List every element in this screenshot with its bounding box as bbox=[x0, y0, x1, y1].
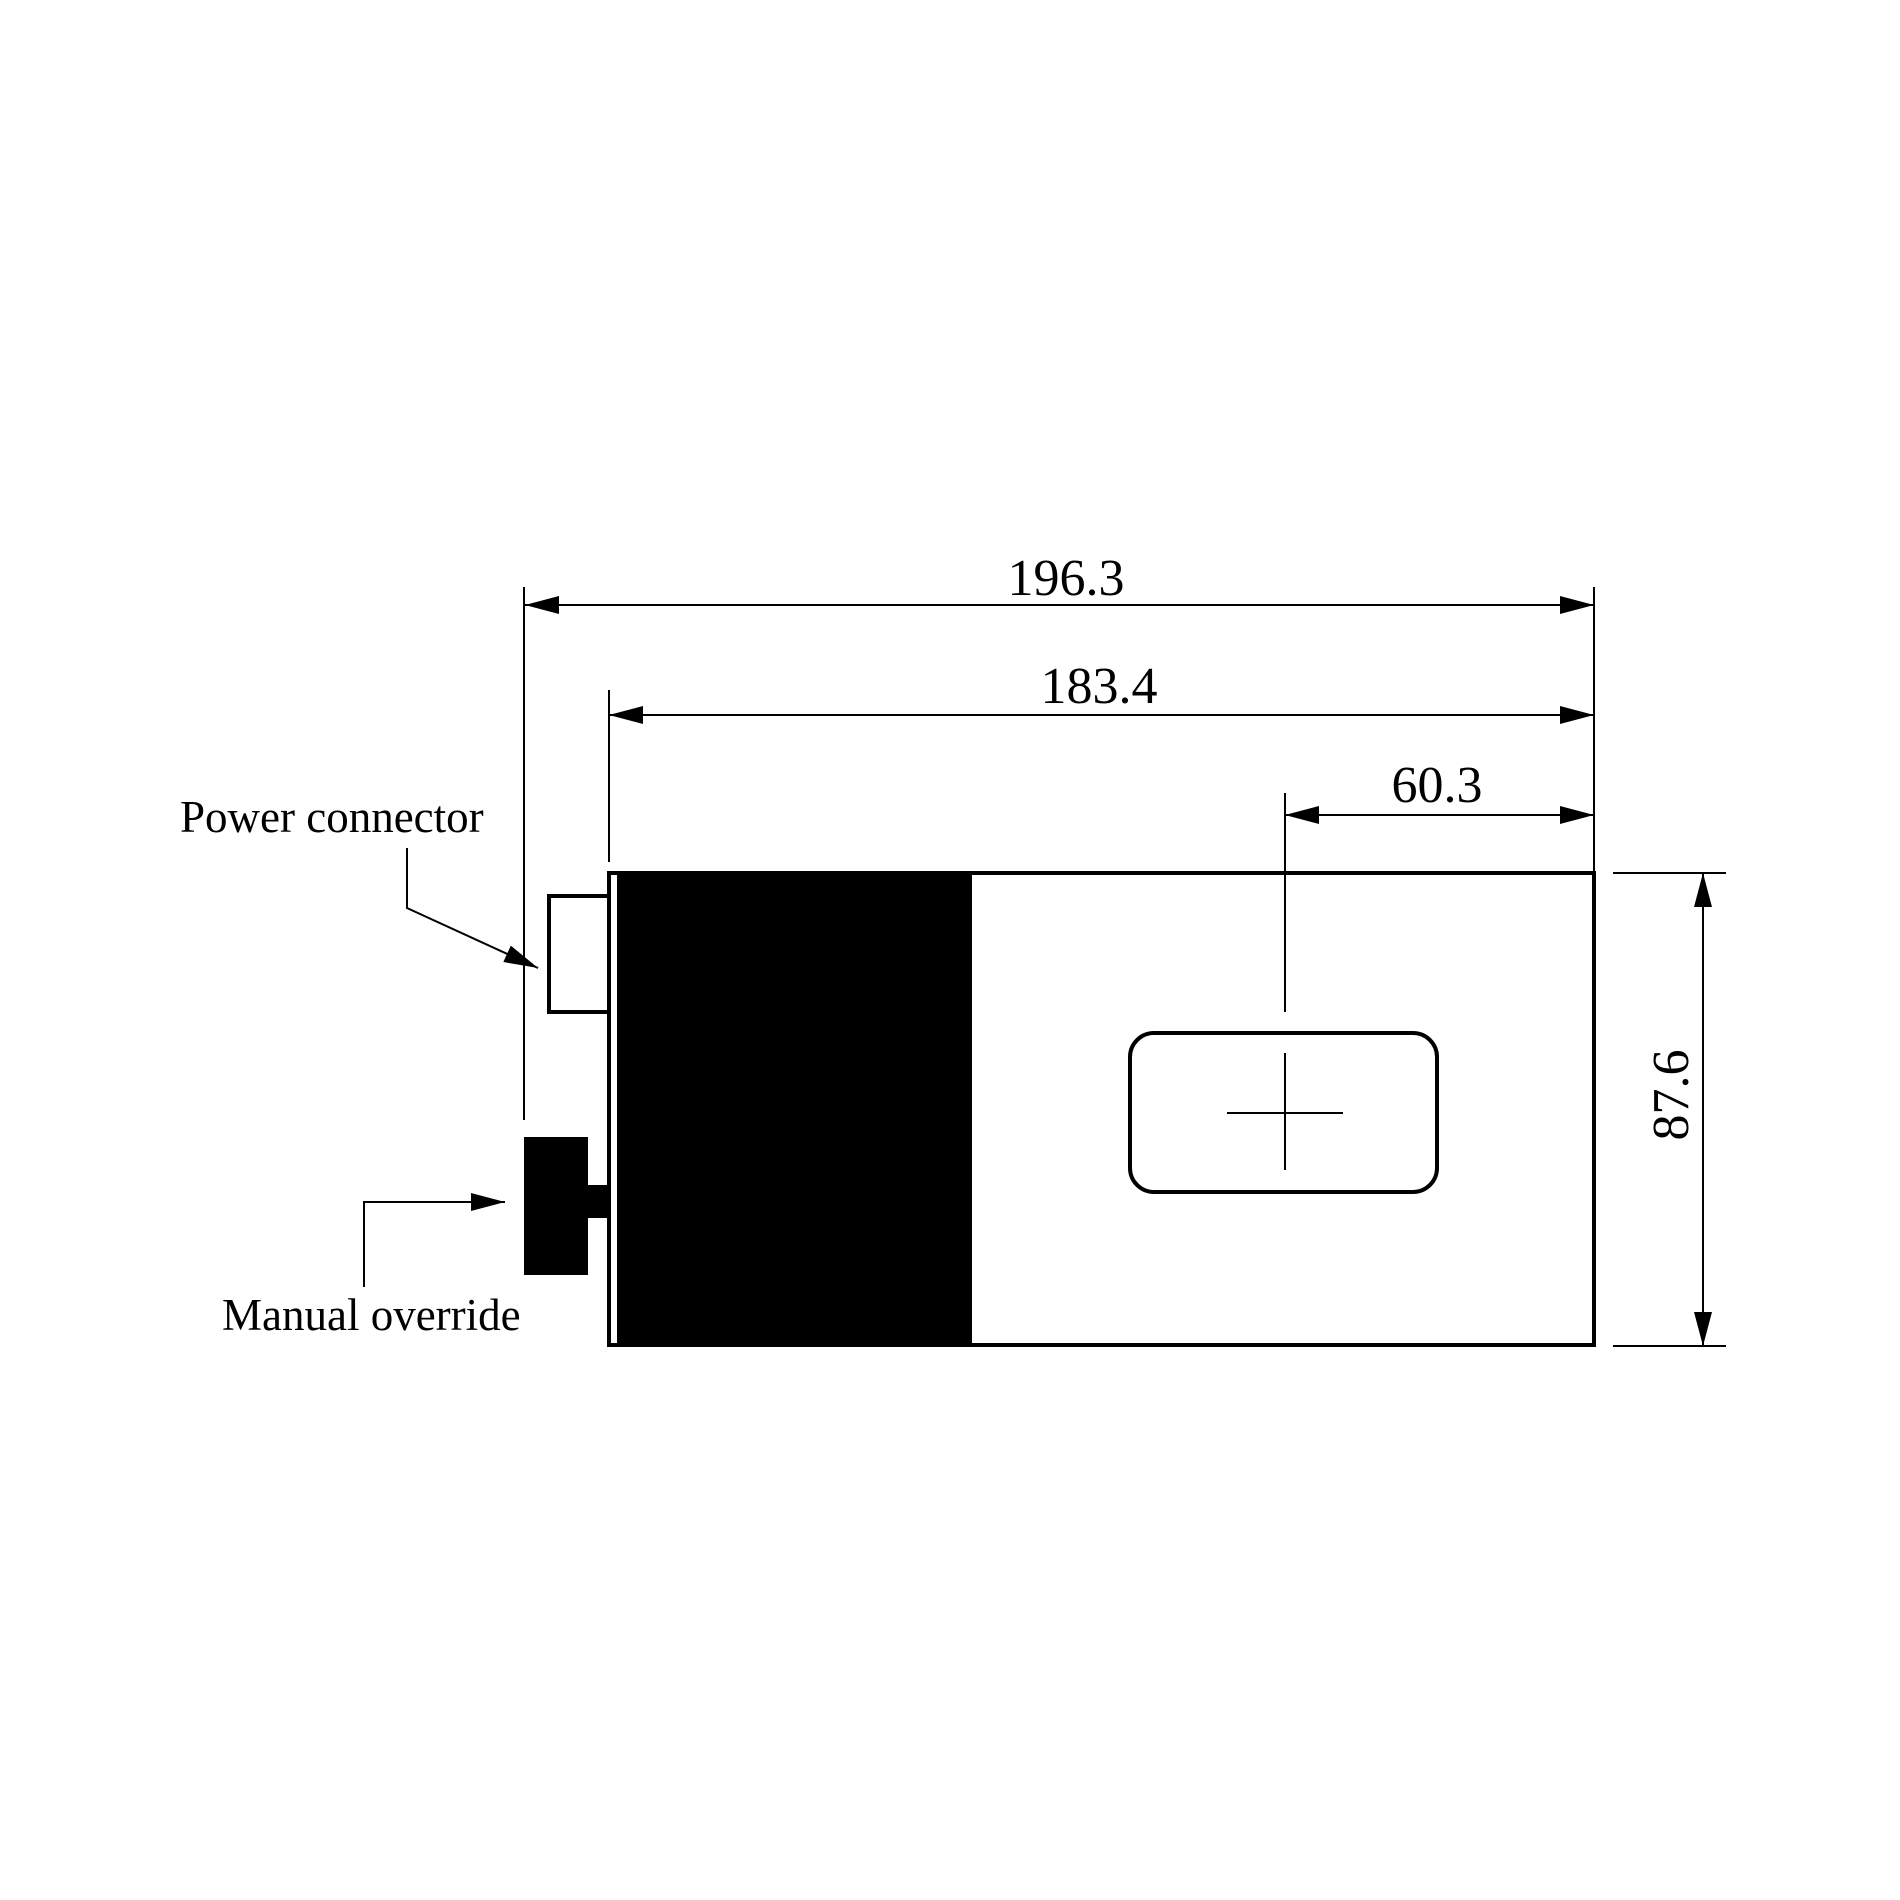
arrowhead-offset-left-icon bbox=[1285, 806, 1319, 824]
dimension-body-height: 87.6 bbox=[1643, 873, 1712, 1346]
arrowhead-offset-right-icon bbox=[1560, 806, 1594, 824]
dimension-crosshair-offset: 60.3 bbox=[1285, 757, 1594, 824]
arrowhead-total-left-icon bbox=[525, 596, 559, 614]
dimension-total-length: 196.3 bbox=[525, 550, 1594, 614]
label-manual-override: Manual override bbox=[222, 1290, 521, 1340]
leader-arrowhead-manual-icon bbox=[471, 1193, 505, 1211]
power-connector-shape bbox=[549, 896, 609, 1012]
leader-line-power-connector bbox=[407, 848, 538, 968]
label-power-connector: Power connector bbox=[180, 792, 484, 842]
leader-line-manual-override bbox=[364, 1202, 505, 1287]
arrowhead-height-bottom-icon bbox=[1694, 1312, 1712, 1346]
dimension-value-total-length: 196.3 bbox=[1008, 550, 1125, 607]
dimension-body-length: 183.4 bbox=[609, 658, 1594, 724]
dimension-value-body-height: 87.6 bbox=[1643, 1050, 1700, 1141]
callout-manual-override: Manual override bbox=[222, 1193, 521, 1340]
manual-override-stem bbox=[588, 1185, 607, 1218]
manual-override-knob bbox=[524, 1137, 588, 1275]
dimension-value-crosshair-offset: 60.3 bbox=[1392, 757, 1483, 814]
drawing-page: 196.3 183.4 60.3 87.6 Power connect bbox=[0, 0, 1900, 1900]
callout-power-connector: Power connector bbox=[180, 792, 542, 976]
arrowhead-height-top-icon bbox=[1694, 873, 1712, 907]
arrowhead-total-right-icon bbox=[1560, 596, 1594, 614]
arrowhead-body-right-icon bbox=[1560, 706, 1594, 724]
part-geometry bbox=[524, 793, 1594, 1345]
dimension-value-body-length: 183.4 bbox=[1041, 658, 1158, 715]
arrowhead-body-left-icon bbox=[609, 706, 643, 724]
motor-section-fill bbox=[617, 875, 972, 1343]
leader-arrowhead-power-icon bbox=[503, 946, 541, 977]
technical-drawing-canvas: 196.3 183.4 60.3 87.6 Power connect bbox=[0, 0, 1900, 1900]
